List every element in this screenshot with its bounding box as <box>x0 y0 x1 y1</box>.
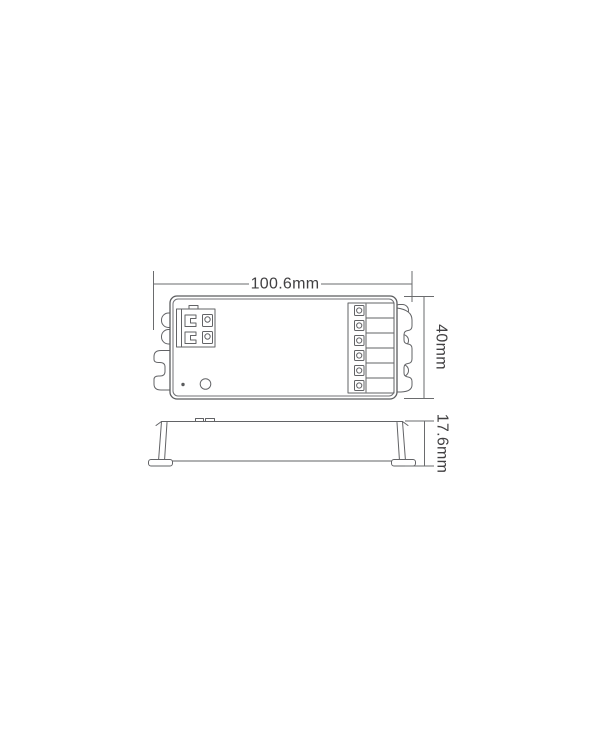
mounting-foot-right <box>392 460 416 467</box>
side-top-plate <box>156 422 408 426</box>
mounting-tab <box>154 351 171 391</box>
mounting-foot-left <box>149 460 173 467</box>
side-top-tab-2 <box>206 419 215 422</box>
side-top-tab-1 <box>196 419 204 422</box>
dimension-drawing-page: 100.6mm 40mm <box>0 0 600 750</box>
side-walls <box>159 422 406 462</box>
width-dimension-label: 100.6mm <box>251 276 320 293</box>
status-led <box>181 383 184 386</box>
output-strain-relief-contour <box>397 308 412 392</box>
top-view <box>154 296 412 399</box>
height-dimension-label: 40mm <box>433 324 450 370</box>
input-terminal-block <box>177 306 216 348</box>
depth-dimension-label: 17.6mm <box>434 414 451 474</box>
device-dimension-drawing: 100.6mm 40mm <box>0 0 600 750</box>
side-view <box>149 419 416 467</box>
